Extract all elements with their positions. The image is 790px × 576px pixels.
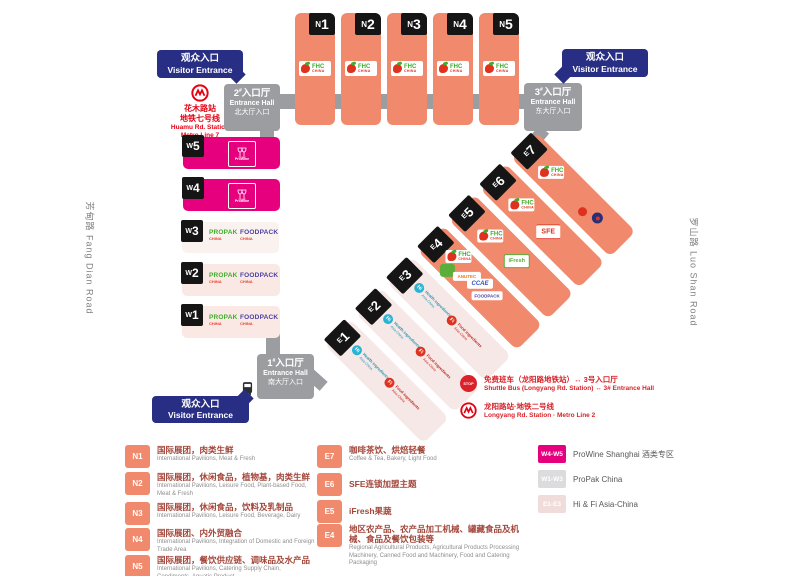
legend-badge-e6: E6 bbox=[317, 473, 342, 496]
longyang-zh: 龙阳路站·地铁二号线 bbox=[484, 402, 595, 412]
fhc-apple-icon bbox=[485, 64, 494, 73]
entrance-3-title: 3#入口厅 bbox=[524, 87, 582, 99]
legend-row-n5: N5 国际展团，餐饮供应链、调味品及水产品International Pavil… bbox=[125, 555, 315, 576]
foodpack-china-logo: FOODPACKCHINA bbox=[240, 315, 278, 326]
legend-badge-e4: E4 bbox=[317, 524, 342, 547]
shuttle-bus-info: STOP 免费班车（龙阳路地铁站）↔ 3号入口厅 Shuttle Bus (Lo… bbox=[460, 375, 654, 393]
hall-w4: W4 ProWine bbox=[183, 179, 280, 211]
propak-china-logo: PROPAKCHINA bbox=[209, 315, 238, 326]
legend-row-n3: N3 国际展团，休闲食品，饮料及乳制品International Pavilio… bbox=[125, 502, 315, 525]
hall-n1-label: N1 bbox=[309, 13, 335, 35]
hall-n2-label: N2 bbox=[355, 13, 381, 35]
hall-n3-label: N3 bbox=[401, 13, 427, 35]
prowine-logo: ProWine bbox=[228, 183, 256, 209]
entrance-1-en: Entrance Hall bbox=[257, 370, 314, 379]
hall-e5-label: E5 bbox=[448, 195, 485, 232]
hall-w3: W3 PROPAKCHINA FOODPACKCHINA bbox=[182, 222, 279, 253]
hall-w2: W2 PROPAKCHINA FOODPACKCHINA bbox=[182, 264, 280, 296]
hall-w1-label: W1 bbox=[181, 304, 203, 326]
fhc-apple-icon bbox=[439, 64, 448, 73]
legend-row-e5: E5 iFresh果蔬 bbox=[317, 500, 532, 523]
visitor-entrance-bubble-northeast: 观众入口 Visitor Entrance bbox=[562, 49, 648, 77]
sfe-logo: SFE bbox=[536, 224, 560, 239]
fhc-apple-icon bbox=[393, 64, 402, 73]
fhc-china-logo: FHCCHINA bbox=[391, 61, 423, 76]
legend-row-w4-w5: W4-W5 ProWine Shanghai 酒类专区 bbox=[538, 445, 674, 463]
foodpack-logo: FOODPACK bbox=[472, 291, 503, 300]
visitor-entrance-bubble-south: 观众入口 Visitor Entrance bbox=[152, 396, 249, 423]
fhc-china-logo: FHCCHINA bbox=[345, 61, 377, 76]
visitor-entrance-zh: 观众入口 bbox=[562, 52, 648, 63]
road-label-luoshan: 罗山路 Luo Shan Road bbox=[688, 217, 701, 326]
fhc-china-logo: FHCCHINA bbox=[538, 166, 564, 179]
entrance-hall-2-box: 2#入口厅 Entrance Hall 北大厅入口 bbox=[224, 84, 280, 131]
legend-badge-n2: N2 bbox=[125, 472, 150, 495]
legend-badge-w1-w3: W1-W3 bbox=[538, 470, 566, 488]
hall-n2: N2 FHCCHINA bbox=[341, 13, 381, 125]
east-halls-group: E1 Hi Health ingredientsAsia-China Fi Fo… bbox=[322, 130, 639, 447]
visitor-entrance-en: Visitor Entrance bbox=[562, 64, 648, 74]
entrance-2-gate: 北大厅入口 bbox=[224, 109, 280, 118]
fhc-china-logo: FHCCHINA bbox=[445, 250, 471, 263]
metro-logo-icon bbox=[191, 84, 209, 102]
ifresh-logo: iFresh bbox=[504, 254, 530, 268]
metro-logo-icon bbox=[460, 402, 477, 419]
hall-n1: N1 FHCCHINA bbox=[295, 13, 335, 125]
hall-w4-label: W4 bbox=[182, 177, 204, 199]
hall-e7-label: E7 bbox=[510, 132, 547, 169]
propak-china-logo: PROPAKCHINA bbox=[209, 230, 238, 241]
hall-e6-label: E6 bbox=[479, 164, 516, 201]
entrance-hall-1-box: 1#入口厅 Entrance Hall 南大厅入口 bbox=[257, 354, 314, 399]
hall-w5: W5 ProWine bbox=[183, 137, 280, 169]
fhc-china-logo: FHCCHINA bbox=[477, 230, 503, 243]
ccae-logo: CCAE bbox=[467, 279, 493, 289]
longyang-en: Longyang Rd. Station · Metro Line 2 bbox=[484, 412, 595, 420]
entrance-hall-3-box: 3#入口厅 Entrance Hall 东大厅入口 bbox=[524, 83, 582, 131]
entrance-2-en: Entrance Hall bbox=[224, 100, 280, 109]
hall-n5-label: N5 bbox=[493, 13, 519, 35]
legend-badge-e5: E5 bbox=[317, 500, 342, 523]
visitor-entrance-en: Visitor Entrance bbox=[152, 410, 249, 420]
legend-badge-n1: N1 bbox=[125, 445, 150, 468]
legend-row-e1-e3: E1-E3 Hi & Fi Asia-China bbox=[538, 495, 638, 513]
road-label-fangdian: 芳甸路 Fang Dian Road bbox=[84, 201, 97, 314]
bus-stop-icon: STOP bbox=[460, 375, 477, 392]
legend-row-w1-w3: W1-W3 ProPak China bbox=[538, 470, 622, 488]
hall-n4-label: N4 bbox=[447, 13, 473, 35]
visitor-entrance-zh: 观众入口 bbox=[157, 53, 243, 64]
coffee-festival-logo bbox=[578, 207, 587, 216]
visitor-entrance-en: Visitor Entrance bbox=[157, 65, 243, 75]
longyang-metro-info: 龙阳路站·地铁二号线 Longyang Rd. Station · Metro … bbox=[460, 402, 595, 420]
prowine-text: ProWine bbox=[235, 158, 249, 162]
prowine-text: ProWine bbox=[235, 200, 249, 204]
legend-row-n2: N2 国际展团，休闲食品，植物基，肉类生鲜International Pavil… bbox=[125, 472, 315, 498]
propak-china-logo: PROPAKCHINA bbox=[209, 273, 238, 284]
entrance-3-gate: 东大厅入口 bbox=[524, 108, 582, 117]
fhc-apple-icon bbox=[510, 200, 519, 209]
fhc-china-logo: FHCCHINA bbox=[508, 198, 534, 211]
fhc-apple-icon bbox=[479, 232, 488, 241]
visitor-entrance-bubble-northwest: 观众入口 Visitor Entrance bbox=[157, 50, 243, 78]
fhc-apple-icon bbox=[301, 64, 310, 73]
legend-row-n4: N4 国际展团、内外贸融合International Pavilions, In… bbox=[125, 528, 315, 554]
fhc-china-logo: FHCCHINA bbox=[299, 61, 331, 76]
hall-w1: W1 PROPAKCHINA FOODPACKCHINA bbox=[182, 306, 280, 338]
legend-badge-n3: N3 bbox=[125, 502, 150, 525]
shuttle-en: Shuttle Bus (Longyang Rd. Station) ↔ 3# … bbox=[484, 385, 654, 393]
legend-row-e7: E7 咖啡茶饮、烘焙轻餐Coffee & Tea, Bakery, Light … bbox=[317, 445, 532, 468]
entrance-2-title: 2#入口厅 bbox=[224, 88, 280, 100]
fhc-apple-icon bbox=[347, 64, 356, 73]
visitor-entrance-zh: 观众入口 bbox=[152, 399, 249, 410]
foodpack-china-logo: FOODPACKCHINA bbox=[240, 230, 278, 241]
expo-floor-plan: 2#入口厅 Entrance Hall 北大厅入口 3#入口厅 Entrance… bbox=[0, 0, 790, 576]
hall-n3: N3 FHCCHINA bbox=[387, 13, 427, 125]
shuttle-zh: 免费班车（龙阳路地铁站）↔ 3号入口厅 bbox=[484, 375, 654, 385]
legend-row-e6: E6 SFE连锁加盟主题 bbox=[317, 473, 532, 496]
fhc-apple-icon bbox=[540, 168, 549, 177]
legend-badge-e1-e3: E1-E3 bbox=[538, 495, 566, 513]
fhc-china-logo: FHCCHINA bbox=[483, 61, 515, 76]
legend-row-n1: N1 国际展团，肉类生鲜International Pavilions, Mea… bbox=[125, 445, 315, 468]
legend-badge-n4: N4 bbox=[125, 528, 150, 551]
legend-badge-w4-w5: W4-W5 bbox=[538, 445, 566, 463]
entrance-1-gate: 南大厅入口 bbox=[257, 379, 314, 388]
hall-w2-label: W2 bbox=[181, 262, 203, 284]
bakery-show-logo bbox=[592, 212, 603, 223]
fhc-apple-icon bbox=[447, 252, 456, 261]
entrance-3-en: Entrance Hall bbox=[524, 99, 582, 108]
hall-w5-label: W5 bbox=[182, 135, 204, 157]
prowine-logo: ProWine bbox=[228, 141, 256, 167]
legend-badge-e7: E7 bbox=[317, 445, 342, 468]
hall-n4: N4 FHCCHINA bbox=[433, 13, 473, 125]
legend-row-e4: E4 地区农产品、农产品加工机械、罐藏食品及机械、食品及餐饮包装等Regiona… bbox=[317, 524, 532, 568]
entrance-1-title: 1#入口厅 bbox=[257, 358, 314, 370]
fhc-china-logo: FHCCHINA bbox=[437, 61, 469, 76]
legend-badge-n5: N5 bbox=[125, 555, 150, 576]
foodpack-china-logo: FOODPACKCHINA bbox=[240, 273, 278, 284]
hall-n5: N5 FHCCHINA bbox=[479, 13, 519, 125]
hall-w3-label: W3 bbox=[181, 220, 203, 242]
